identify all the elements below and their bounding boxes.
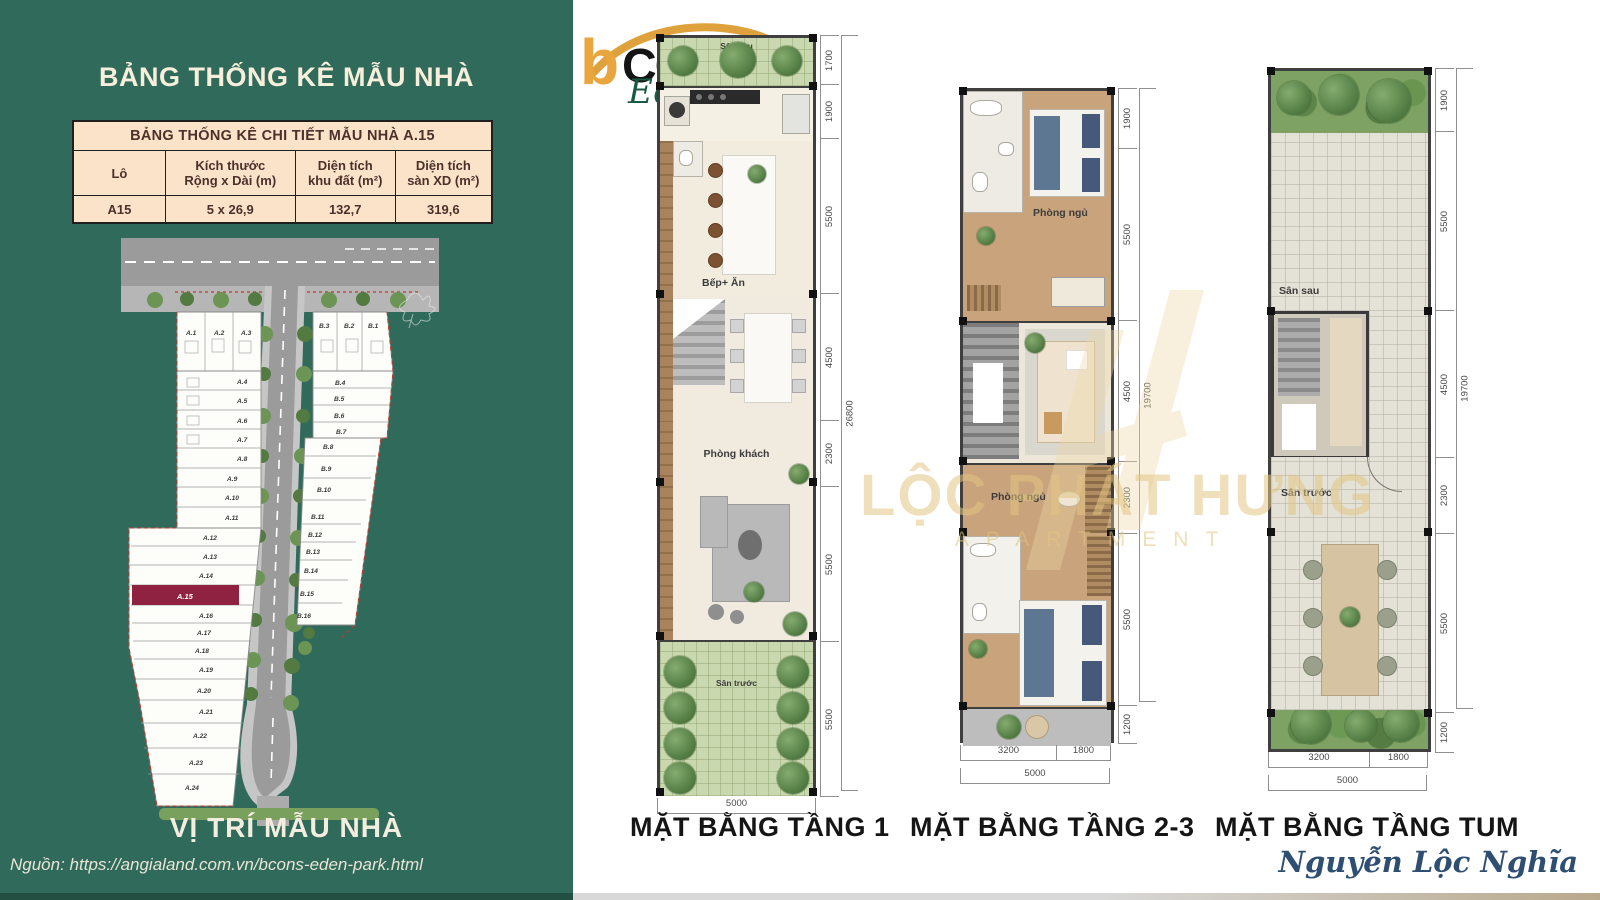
bed	[1029, 109, 1105, 197]
long-table	[1321, 544, 1379, 696]
plant-icon	[977, 227, 995, 245]
tree-icon	[1345, 710, 1377, 742]
bathroom	[963, 91, 1023, 213]
svg-text:B.12: B.12	[308, 532, 322, 539]
svg-text:B.11: B.11	[311, 514, 325, 521]
svg-text:A.21: A.21	[198, 709, 213, 716]
wardrobe	[1087, 536, 1111, 596]
col-header-land: Diện tích khu đất (m²)	[295, 151, 395, 196]
author-signature: Nguyễn Lộc Nghĩa	[1278, 845, 1578, 879]
svg-text:A.4: A.4	[236, 379, 248, 386]
fridge	[782, 94, 810, 134]
pouf	[730, 610, 744, 624]
cell-lot: A15	[73, 196, 165, 224]
plan1-front-yard: Sân trước	[660, 640, 813, 796]
svg-text:A.11: A.11	[224, 515, 239, 522]
tree-icon	[664, 762, 696, 794]
plan2-stair-lounge	[963, 321, 1111, 463]
svg-text:B.4: B.4	[335, 380, 346, 387]
svg-text:A.9: A.9	[226, 476, 238, 483]
tree-icon	[720, 42, 756, 78]
bed	[1019, 600, 1107, 706]
plan3-table-terrace	[1271, 532, 1428, 710]
tree-icon	[668, 46, 698, 76]
plan1-title: MẶT BẰNG TẦNG 1	[630, 812, 880, 843]
svg-text:A.23: A.23	[188, 760, 203, 767]
plan1-dims: 1700 1900 5500 4500 2300 5500 5500	[820, 35, 839, 797]
plan2-bedroom2-lower	[963, 536, 1111, 707]
floor-plan-2: Phòng ngủ Phòng ngủ	[960, 88, 1114, 743]
svg-text:B.1: B.1	[368, 323, 379, 330]
svg-text:A.6: A.6	[236, 418, 248, 425]
site-plan-map: A.1 A.2 A.3 A.4 A.5 A.6 A.7 A.8 A.9 A.10…	[115, 228, 445, 828]
plant-icon	[1025, 333, 1045, 353]
door-arc	[1367, 457, 1402, 492]
svg-text:A.22: A.22	[192, 733, 207, 740]
plan3-stair-box	[1271, 311, 1428, 457]
svg-text:B.9: B.9	[321, 466, 332, 473]
svg-text:A.13: A.13	[202, 554, 217, 561]
tree-icon	[1277, 81, 1311, 115]
wood-wall	[660, 486, 673, 640]
pouf	[708, 604, 724, 620]
sofa	[1051, 277, 1105, 307]
shelf	[967, 285, 1001, 311]
lounge-sofa	[1037, 341, 1095, 443]
cell-floor: 319,6	[395, 196, 492, 224]
chair	[1377, 560, 1397, 580]
stool	[708, 163, 723, 178]
bathroom	[963, 536, 1021, 634]
tree-icon	[664, 728, 696, 760]
plant-icon	[783, 612, 807, 636]
page-title: BẢNG THỐNG KÊ MẪU NHÀ	[0, 62, 573, 93]
room-label: Sân trước	[716, 678, 757, 688]
plan2-bottom-dims: 3200 1800	[960, 745, 1111, 761]
chair	[1303, 656, 1323, 676]
plant-icon	[1340, 607, 1360, 627]
stove-counter	[690, 90, 760, 104]
plan2-balcony	[963, 707, 1111, 746]
chair	[730, 349, 744, 363]
svg-text:A.5: A.5	[236, 398, 248, 405]
svg-text:A.16: A.16	[198, 613, 213, 620]
plan3-bottom-dims: 3200 1800	[1268, 752, 1428, 768]
svg-text:A.19: A.19	[198, 667, 213, 674]
svg-text:B.7: B.7	[336, 429, 347, 436]
plan2-bottom-total: 5000	[960, 768, 1110, 784]
plan1-stairs-dining	[660, 295, 813, 421]
plant-icon	[748, 165, 766, 183]
plan3-green-top	[1271, 71, 1428, 133]
wood-wall	[660, 421, 673, 486]
svg-text:A.24: A.24	[184, 785, 199, 792]
lot-blocks-right	[297, 312, 393, 625]
chair	[792, 349, 806, 363]
svg-text:A.7: A.7	[236, 437, 248, 444]
col-header-size: Kích thước Rộng x Dài (m)	[165, 151, 295, 196]
tree-icon	[777, 762, 809, 794]
coffee-table	[738, 530, 762, 560]
plan3-green-bottom	[1271, 710, 1428, 749]
plan2-bedroom2-upper: Phòng ngủ	[963, 463, 1111, 536]
chair	[1377, 656, 1397, 676]
svg-text:B.5: B.5	[334, 396, 345, 403]
plan2-dim-total: 19700	[1139, 88, 1156, 702]
plan1-back-yard: Sân sau	[660, 38, 813, 86]
stool	[708, 253, 723, 268]
tree-icon	[1383, 710, 1419, 742]
tree-icon	[1319, 75, 1359, 115]
room-label: Phòng khách	[704, 448, 770, 460]
left-panel: BẢNG THỐNG KÊ MẪU NHÀ BẢNG THỐNG KÊ CHI …	[0, 0, 573, 900]
col-header-floor: Diện tích sàn XD (m²)	[395, 151, 492, 196]
washer-icon	[664, 96, 690, 126]
plan1-living-upper: Phòng khách	[660, 421, 813, 486]
logo-b: b	[580, 26, 619, 98]
svg-text:A.2: A.2	[213, 330, 225, 337]
map-caption: VỊ TRÍ MẪU NHÀ	[0, 812, 573, 844]
tree-icon	[664, 656, 696, 688]
svg-text:B.3: B.3	[319, 323, 330, 330]
vanity	[1057, 491, 1081, 507]
floor-plan-1: Sân sau Bếp+ Ăn	[657, 35, 816, 795]
stool	[708, 223, 723, 238]
tree-icon	[772, 46, 802, 76]
svg-text:A.15: A.15	[176, 592, 194, 601]
room-label: Phòng ngủ	[1033, 207, 1088, 219]
plant-icon	[789, 464, 809, 484]
svg-text:B.10: B.10	[317, 487, 331, 494]
svg-text:B.15: B.15	[300, 591, 314, 598]
chair	[730, 319, 744, 333]
svg-text:A.8: A.8	[236, 456, 248, 463]
stool	[708, 193, 723, 208]
plant-icon	[969, 640, 987, 658]
plan2-title: MẶT BẰNG TẦNG 2-3	[910, 812, 1180, 843]
tree-icon	[777, 656, 809, 688]
svg-text:A.18: A.18	[194, 648, 209, 655]
svg-text:A.17: A.17	[196, 630, 211, 637]
col-header-lo: Lô	[73, 151, 165, 196]
tree-icon	[1367, 79, 1411, 123]
svg-text:A.14: A.14	[198, 573, 213, 580]
table-title: BẢNG THỐNG KÊ CHI TIẾT MẪU NHÀ A.15	[73, 121, 492, 151]
svg-text:A.12: A.12	[202, 535, 217, 542]
svg-text:A.3: A.3	[240, 330, 252, 337]
cell-size: 5 x 26,9	[165, 196, 295, 224]
lot-blocks-left	[129, 312, 261, 806]
small-bath	[673, 141, 703, 177]
plan1-kitchen-dining: Bếp+ Ăn	[660, 141, 813, 295]
chair	[1377, 608, 1397, 628]
chair	[792, 379, 806, 393]
plant-icon	[997, 715, 1021, 739]
source-link[interactable]: Nguồn: https://angialand.com.vn/bcons-ed…	[10, 855, 570, 875]
dining-table	[744, 313, 792, 403]
wood-wall	[660, 295, 673, 421]
plan3-title: MẶT BẰNG TẦNG TUM	[1215, 812, 1495, 843]
svg-text:A.20: A.20	[196, 688, 211, 695]
floor-plan-3: Sân sau Sân trước	[1268, 68, 1431, 752]
svg-text:B.13: B.13	[306, 549, 320, 556]
plan3-front-corridor: Sân trước	[1271, 457, 1428, 532]
room-label: Sân trước	[1281, 487, 1332, 499]
plan3-dim-total: 19700	[1456, 68, 1473, 709]
plan1-kitchen	[660, 86, 813, 141]
plant-icon	[744, 582, 764, 602]
tree-icon	[777, 728, 809, 760]
sofa-chaise	[700, 496, 728, 548]
footer-strip	[0, 893, 1600, 900]
wood-wall	[660, 141, 673, 295]
svg-text:B.16: B.16	[297, 613, 311, 620]
cell-land: 132,7	[295, 196, 395, 224]
plan1-living-sofa	[660, 486, 813, 640]
svg-text:B.14: B.14	[304, 568, 318, 575]
svg-text:A.1: A.1	[185, 330, 197, 337]
wardrobe	[1085, 465, 1111, 533]
chair	[792, 319, 806, 333]
room-label: Sân sau	[1279, 285, 1319, 297]
plan3-bottom-total: 5000	[1268, 775, 1427, 791]
chair	[1303, 560, 1323, 580]
plan2-bedroom1: Phòng ngủ	[963, 91, 1111, 321]
plan3-dims: 1900 5500 4500 2300 5500 1200	[1435, 68, 1454, 753]
stair-enclosure	[1271, 311, 1369, 457]
chair	[1025, 715, 1049, 739]
svg-text:A.10: A.10	[224, 495, 239, 502]
spec-table: BẢNG THỐNG KÊ CHI TIẾT MẪU NHÀ A.15 Lô K…	[72, 120, 493, 224]
plan2-dims: 1900 5500 4500 2300 5500 1200	[1118, 88, 1137, 744]
plan3-back-terrace: Sân sau	[1271, 133, 1428, 311]
svg-text:B.8: B.8	[323, 444, 334, 451]
plan1-dim-total: 26800	[841, 35, 858, 791]
tree-icon	[664, 692, 696, 724]
svg-text:B.6: B.6	[334, 413, 345, 420]
room-label: Phòng ngủ	[991, 491, 1046, 503]
chair	[1303, 608, 1323, 628]
tree-icon	[777, 692, 809, 724]
chair	[730, 379, 744, 393]
svg-text:B.2: B.2	[344, 323, 355, 330]
tree-icon	[1291, 710, 1331, 744]
room-label: Bếp+ Ăn	[702, 277, 745, 289]
